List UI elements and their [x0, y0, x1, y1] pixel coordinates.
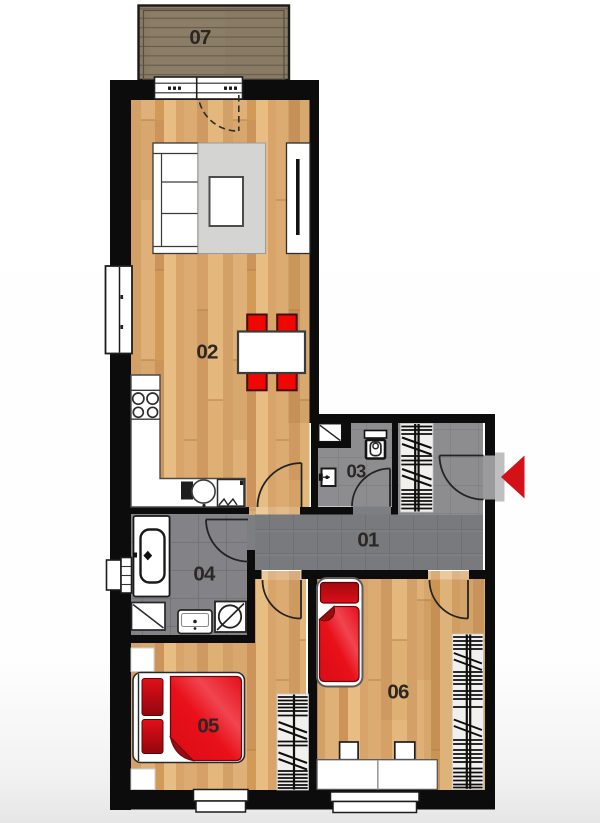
svg-text:04: 04	[193, 563, 216, 586]
svg-text:01: 01	[357, 529, 379, 552]
svg-text:07: 07	[189, 26, 211, 49]
svg-text:06: 06	[387, 681, 409, 704]
svg-text:05: 05	[197, 715, 219, 738]
svg-text:03: 03	[347, 461, 366, 482]
svg-text:02: 02	[196, 341, 218, 364]
